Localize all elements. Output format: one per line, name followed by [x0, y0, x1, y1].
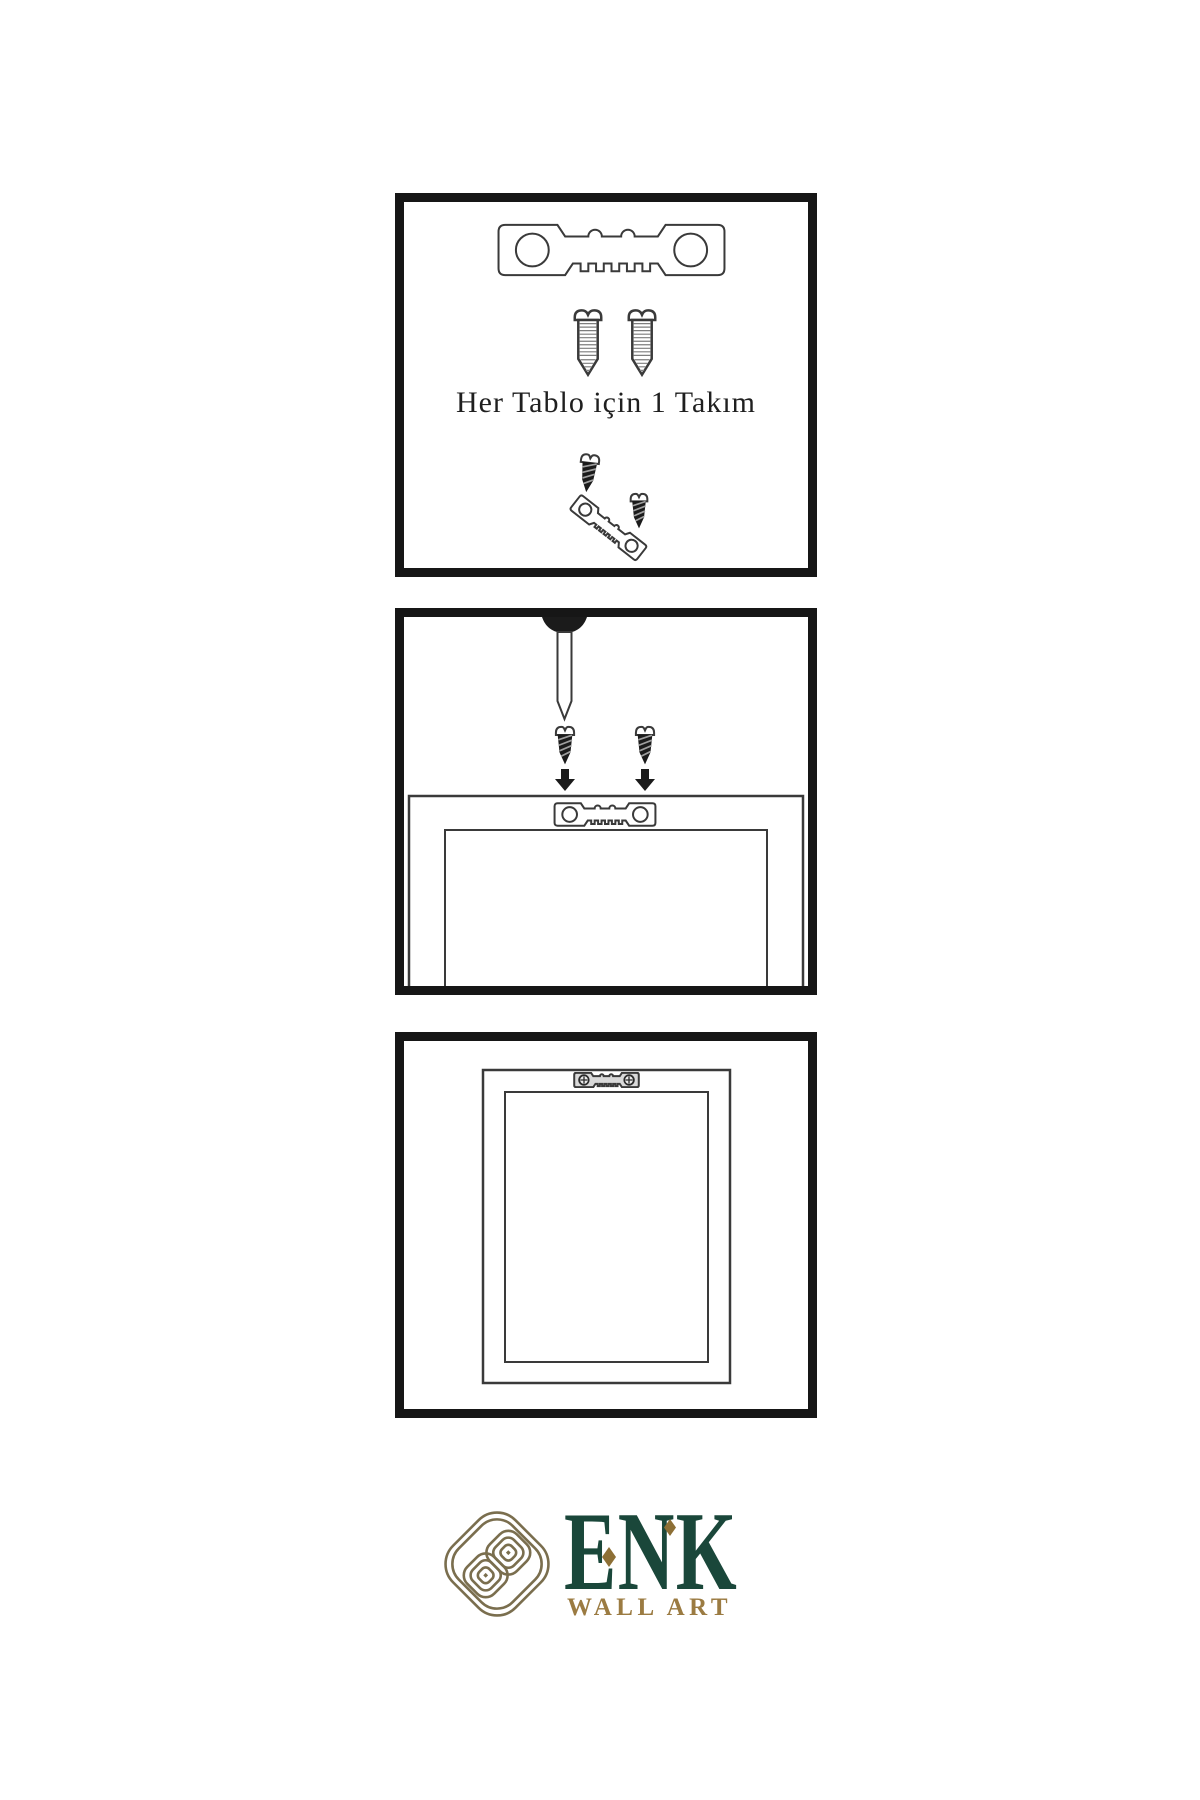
wall-nail-icon: [542, 617, 587, 719]
brand-subtitle: WALL ART: [567, 1594, 732, 1622]
frame-back-icon: [483, 1070, 730, 1383]
screw-icon: [556, 727, 574, 763]
sawtooth-hanger-icon: [499, 225, 725, 275]
hardware-kit-drawing: [404, 202, 808, 568]
screw-icon: [631, 494, 648, 527]
screw-icon: [575, 310, 601, 374]
frame-inner-edge: [505, 1092, 708, 1362]
arrow-down-icon: [635, 769, 655, 791]
hang-step-drawing: [404, 1041, 808, 1409]
kit-caption: Her Tablo için 1 Takım: [404, 386, 808, 420]
screw-head-icon: [579, 1075, 588, 1084]
screw-icon: [636, 727, 654, 763]
screw-icon: [577, 454, 599, 492]
install-step-drawing: [404, 617, 808, 986]
panel-hardware-kit: Her Tablo için 1 Takım: [395, 193, 817, 577]
frame-inner-edge: [445, 830, 767, 986]
screw-head-icon: [624, 1075, 633, 1084]
knot-logo-icon: [437, 1496, 557, 1632]
panel-install-step: [395, 608, 817, 995]
screw-icon: [629, 310, 655, 374]
sawtooth-hanger-icon: [555, 803, 656, 825]
arrow-down-icon: [555, 769, 575, 791]
instruction-sheet: Her Tablo için 1 Takım: [0, 0, 1200, 1800]
panel-hang-step: [395, 1032, 817, 1418]
brand-name: ENK: [564, 1496, 738, 1608]
